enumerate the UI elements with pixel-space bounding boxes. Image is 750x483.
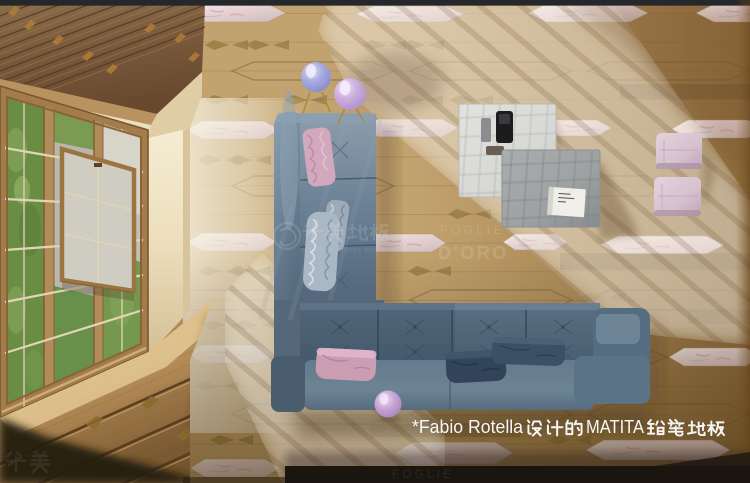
svg-text:FOGLIE: FOGLIE (392, 467, 454, 481)
svg-text:D'ORO: D'ORO (438, 243, 509, 263)
svg-text:HUAMEI FLOORING GROUP: HUAMEI FLOORING GROUP (303, 248, 386, 254)
svg-text:FOGLIE: FOGLIE (440, 223, 505, 237)
svg-text:MATITA: MATITA (586, 416, 645, 437)
svg-text:*Fabio Rotella: *Fabio Rotella (412, 416, 524, 437)
